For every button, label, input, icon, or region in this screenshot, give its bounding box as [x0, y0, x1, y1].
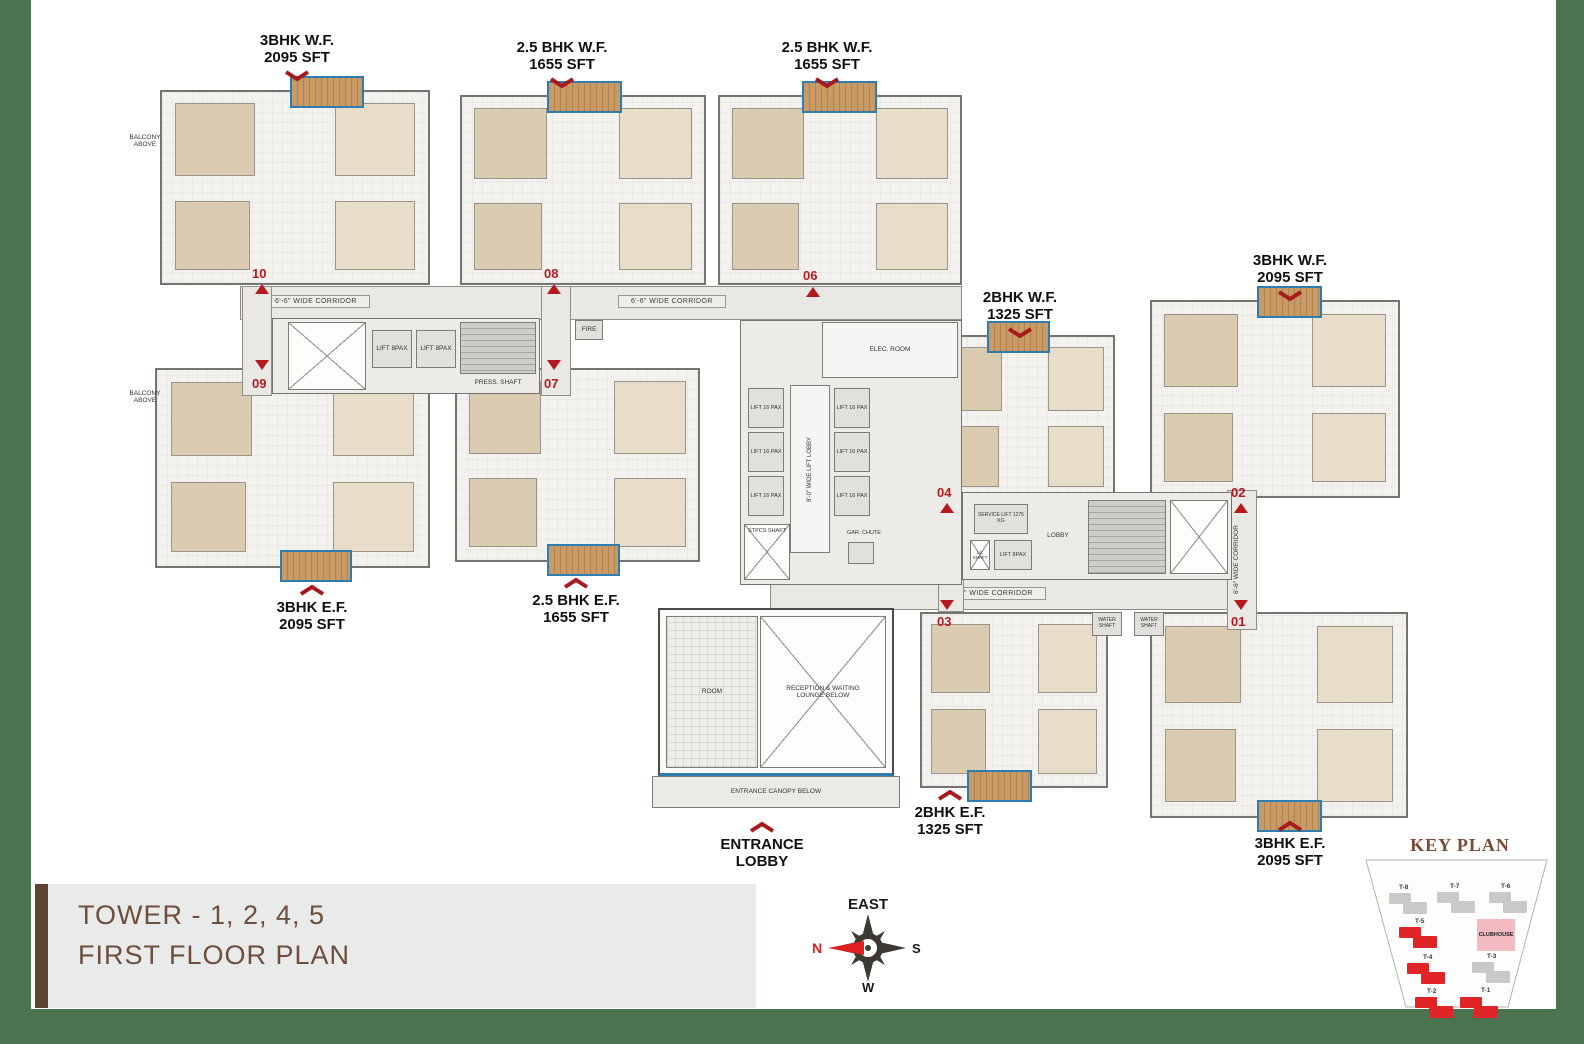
marker-arrow-icon	[806, 287, 820, 297]
staircase	[460, 322, 536, 374]
callout-arrow-icon	[813, 77, 841, 89]
tower-label-t1: T-1	[1481, 987, 1490, 994]
staircase	[1088, 500, 1166, 574]
unit-marker-10: 10	[252, 266, 266, 281]
apartment-cluster-unit-04	[935, 335, 1115, 500]
lift-lobby-label: 8'-0" WIDE LIFT LOBBY	[807, 437, 814, 502]
unit-marker-09: 09	[252, 376, 266, 391]
callout-arrow-icon	[1006, 327, 1034, 339]
room-block	[1048, 426, 1104, 487]
callout-type: 2BHK W.F.	[950, 289, 1090, 306]
callout-3bhk-ef-left: 3BHK E.F. 2095 SFT	[242, 584, 382, 633]
tower-label-t4: T-4	[1423, 954, 1432, 961]
sheet-title-towers: TOWER - 1, 2, 4, 5	[78, 900, 325, 931]
entrance-room: ROOM	[666, 616, 758, 768]
tower-label-t7: T-7	[1450, 883, 1459, 890]
room-block	[171, 382, 252, 456]
room-block	[876, 108, 948, 179]
room-block	[175, 201, 249, 270]
room-block	[171, 482, 247, 553]
room-block	[1317, 729, 1393, 802]
water-shaft: WATER SHAFT	[1134, 612, 1164, 636]
lift-16pax: LIFT 16 PAX	[834, 432, 870, 472]
callout-area: 2095 SFT	[227, 49, 367, 66]
compass-north-label: N	[812, 940, 822, 956]
room-block	[619, 203, 692, 270]
frame-bottom-bar	[0, 1009, 1584, 1044]
room-block	[1164, 413, 1233, 483]
elec-room: ELEC. ROOM	[822, 322, 958, 378]
room-block	[1038, 624, 1097, 693]
callout-area: 1655 SFT	[757, 56, 897, 73]
callout-arrow-icon	[1276, 290, 1304, 302]
callout-arrow-icon	[548, 77, 576, 89]
callout-type: 3BHK W.F.	[1220, 252, 1360, 269]
room-block	[931, 709, 986, 774]
callout-2-5bhk-wf-top-mid: 2.5 BHK W.F. 1655 SFT	[492, 39, 632, 89]
room-block	[474, 203, 542, 270]
callout-2-5bhk-wf-top-right: 2.5 BHK W.F. 1655 SFT	[757, 39, 897, 89]
lift-16pax: LIFT 16 PAX	[834, 388, 870, 428]
lobby-label: LOBBY	[1038, 532, 1078, 539]
room-block	[614, 381, 686, 453]
lift-16pax: LIFT 16 PAX	[748, 432, 784, 472]
corridor-label-vertical: 6'-6" WIDE CORRIDOR	[1233, 512, 1247, 608]
callout-area: LOBBY	[692, 853, 832, 870]
entrance-canopy: ENTRANCE CANOPY BELOW	[652, 776, 900, 808]
callout-area: 1325 SFT	[950, 306, 1090, 323]
marker-arrow-icon	[940, 503, 954, 513]
title-accent-bar	[35, 884, 48, 1008]
unit-marker-04: 04	[937, 485, 951, 500]
callout-arrow-icon	[298, 584, 326, 596]
frame-left-bar	[0, 0, 31, 1044]
tower-footprint-t4	[1407, 963, 1447, 987]
lift-16pax: LIFT 16 PAX	[834, 476, 870, 516]
lift-lobby: 8'-0" WIDE LIFT LOBBY	[790, 385, 830, 553]
room-block	[469, 478, 536, 546]
callout-arrow-icon	[1276, 820, 1304, 832]
tower-label-t2: T-2	[1427, 988, 1436, 995]
tower-footprint-t5	[1399, 927, 1439, 951]
callout-type: 2BHK E.F.	[880, 804, 1020, 821]
balcony	[547, 544, 620, 576]
marker-arrow-icon	[255, 360, 269, 370]
room-block	[876, 203, 948, 270]
callout-type: 3BHK W.F.	[227, 32, 367, 49]
callout-3bhk-ef-right: 3BHK E.F. 2095 SFT	[1220, 820, 1360, 869]
lift-16pax: LIFT 16 PAX	[748, 388, 784, 428]
press-shaft-label: PRESS. SHAFT	[458, 379, 538, 386]
unit-marker-07: 07	[544, 376, 558, 391]
balcony	[280, 550, 352, 582]
callout-3bhk-wf-right: 3BHK W.F. 2095 SFT	[1220, 252, 1360, 302]
room-block	[1048, 347, 1104, 411]
unit-marker-06: 06	[803, 268, 817, 283]
tower-label-t3: T-3	[1487, 953, 1496, 960]
lift-16pax: LIFT 16 PAX	[748, 476, 784, 516]
apartment-cluster-unit-08	[460, 95, 706, 285]
callout-area: 1655 SFT	[492, 56, 632, 73]
apartment-cluster-unit-07	[455, 368, 700, 562]
gar-chute-box	[848, 542, 874, 564]
tower-footprint-t3	[1472, 962, 1512, 986]
callout-area: 2095 SFT	[1220, 852, 1360, 869]
tower-footprint-t1	[1460, 997, 1500, 1021]
callout-area: 1655 SFT	[506, 609, 646, 626]
tower-footprint-t8	[1389, 893, 1429, 917]
callout-2-5bhk-ef: 2.5 BHK E.F. 1655 SFT	[506, 577, 646, 626]
callout-3bhk-wf-top-left: 3BHK W.F. 2095 SFT	[227, 32, 367, 82]
key-plan-title: KEY PLAN	[1355, 835, 1565, 856]
callout-type: 2.5 BHK W.F.	[757, 39, 897, 56]
callout-arrow-icon	[283, 70, 311, 82]
key-plan: KEY PLAN T-8 T-7 T-6 T-5 CLUBHOUSE T-4 T…	[1355, 835, 1565, 1013]
marker-arrow-icon	[1234, 600, 1248, 610]
compass: EAST N S W	[800, 896, 936, 996]
room-block	[335, 103, 415, 176]
stpcs-shaft-label: STPCS SHAFT	[744, 528, 790, 534]
apartment-cluster-unit-09	[155, 368, 430, 568]
shaft-crossed	[288, 322, 366, 390]
unit-marker-08: 08	[544, 266, 558, 281]
floor-plan-sheet: 6'-6" WIDE CORRIDOR 6'-6" WIDE CORRIDOR …	[0, 0, 1584, 1044]
apartment-cluster-unit-10	[160, 90, 430, 285]
room-block	[732, 203, 799, 270]
callout-type: 2.5 BHK W.F.	[492, 39, 632, 56]
unit-marker-03: 03	[937, 614, 951, 629]
corridor-label: 6'-6" WIDE CORRIDOR	[618, 295, 726, 308]
marker-arrow-icon	[547, 284, 561, 294]
corridor-label: 6'-6" WIDE CORRIDOR	[262, 295, 370, 308]
room-block	[931, 624, 990, 693]
marker-arrow-icon	[940, 600, 954, 610]
reception-waiting-lounge: RECEPTION & WAITING LOUNGE BELOW	[760, 616, 886, 768]
service-lift: SERVICE LIFT 1275 KG	[974, 504, 1028, 534]
compass-south-label: S	[912, 941, 921, 956]
room-block	[1164, 314, 1238, 388]
marker-arrow-icon	[1234, 503, 1248, 513]
clubhouse-footprint: CLUBHOUSE	[1477, 919, 1515, 951]
compass-east-label: EAST	[800, 896, 936, 913]
marker-arrow-icon	[547, 360, 561, 370]
callout-entrance-lobby: ENTRANCE LOBBY	[692, 821, 832, 870]
key-plan-boundary	[1355, 858, 1565, 1010]
room-block	[1317, 626, 1393, 703]
callout-type: 3BHK E.F.	[1220, 835, 1360, 852]
callout-arrow-icon	[748, 821, 776, 833]
unit-marker-01: 01	[1231, 614, 1245, 629]
callout-area: 2095 SFT	[1220, 269, 1360, 286]
water-shaft: WATER SHAFT	[1092, 612, 1122, 636]
room-block	[1165, 626, 1241, 703]
sheet-title-plan: FIRST FLOOR PLAN	[78, 940, 350, 971]
lift-8pax: LIFT 8PAX	[372, 330, 412, 368]
room-block	[1038, 709, 1097, 774]
room-block	[175, 103, 255, 176]
tower-label-t5: T-5	[1415, 918, 1424, 925]
callout-arrow-icon	[562, 577, 590, 589]
gar-chute-label: GAR. CHUTE	[838, 530, 890, 536]
shaft-crossed	[1170, 500, 1228, 574]
tower-footprint-t2	[1415, 997, 1455, 1021]
callout-2bhk-wf: 2BHK W.F. 1325 SFT	[950, 289, 1090, 339]
apartment-cluster-unit-03	[920, 612, 1108, 788]
tower-label-t8: T-8	[1399, 884, 1408, 891]
room-block	[1165, 729, 1236, 802]
marker-arrow-icon	[255, 284, 269, 294]
room-block	[333, 482, 414, 553]
callout-area: 1325 SFT	[880, 821, 1020, 838]
room-block	[732, 108, 804, 179]
callout-type: 2.5 BHK E.F.	[506, 592, 646, 609]
room-block	[335, 201, 415, 270]
compass-west-label: W	[862, 980, 874, 995]
lift-8pax: LIFT 8PAX	[416, 330, 456, 368]
room-block	[474, 108, 547, 179]
room-block	[619, 108, 692, 179]
room-block	[1312, 413, 1386, 483]
balcony-above-label: BALCONY ABOVE	[120, 134, 170, 149]
room-block	[1312, 314, 1386, 388]
callout-type: ENTRANCE	[692, 836, 832, 853]
lift-8pax: LIFT 8PAX	[994, 540, 1032, 570]
unit-marker-02: 02	[1231, 485, 1245, 500]
callout-arrow-icon	[936, 789, 964, 801]
apartment-cluster-unit-06	[718, 95, 962, 285]
callout-type: 3BHK E.F.	[242, 599, 382, 616]
tower-label-t6: T-6	[1501, 883, 1510, 890]
callout-2bhk-ef: 2BHK E.F. 1325 SFT	[880, 789, 1020, 838]
callout-area: 2095 SFT	[242, 616, 382, 633]
apartment-cluster-unit-01	[1150, 612, 1408, 818]
balcony-above-label: BALCONY ABOVE	[120, 390, 170, 405]
tower-footprint-t7	[1437, 892, 1477, 916]
lc-shaft: LC SHAFT	[970, 540, 990, 570]
fire-shaft: FIRE	[575, 320, 603, 340]
tower-footprint-t6	[1489, 892, 1529, 916]
room-block	[614, 478, 686, 546]
apartment-cluster-unit-02	[1150, 300, 1400, 498]
